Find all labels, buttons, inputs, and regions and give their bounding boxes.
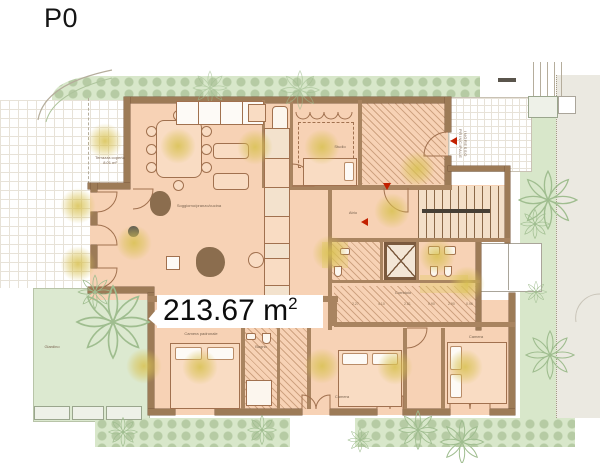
label-main-entrance: INGRESSO PRINCIPALE xyxy=(460,120,468,168)
wall-south xyxy=(403,409,450,415)
dimension: 2.90 xyxy=(448,302,455,306)
wall-bed3-west xyxy=(441,328,445,409)
label-master: Camera padronale xyxy=(178,331,224,336)
dining-chair xyxy=(146,162,157,173)
dimension: 2.81 xyxy=(404,302,411,306)
planter-box xyxy=(106,406,142,420)
garden-bottom-right xyxy=(355,418,575,447)
label-studio: Studio xyxy=(328,144,352,149)
planter-box xyxy=(34,406,70,420)
label-bath: Bagno xyxy=(252,344,270,349)
coffee-table xyxy=(166,256,180,270)
kitchen-appliance xyxy=(248,104,266,122)
shaft xyxy=(264,258,290,286)
wall-west xyxy=(91,183,97,192)
dining-chair xyxy=(201,162,212,173)
wall-terrace-east xyxy=(124,97,130,185)
shaft xyxy=(264,216,290,244)
light-glow xyxy=(399,151,435,187)
label-terrace: Terrazza coperta 8.01 m² xyxy=(84,155,136,165)
entrance-arrow-icon xyxy=(383,183,391,190)
wall-south xyxy=(490,409,515,415)
pergola-bar xyxy=(498,78,516,82)
light-glow xyxy=(374,193,410,229)
label-bedroom2: Camera xyxy=(330,394,354,399)
wall-south xyxy=(215,409,302,415)
light-glow xyxy=(449,266,485,302)
planter-box xyxy=(72,406,104,420)
neighbor-area xyxy=(556,75,600,418)
wall-elev-w xyxy=(380,240,383,282)
entry-planter xyxy=(528,96,558,118)
label-bedroom3: Camera xyxy=(464,334,488,339)
label-corridor: Corridoio xyxy=(390,290,416,295)
sink xyxy=(246,333,256,340)
light-glow xyxy=(87,123,123,159)
light-glow xyxy=(182,349,218,385)
wall-east-upper xyxy=(445,97,451,132)
pillow xyxy=(344,162,354,181)
lightwell-line xyxy=(508,243,509,290)
wall-bottom-east xyxy=(509,293,515,415)
wall-stairwing-east xyxy=(505,166,510,243)
entry-box xyxy=(558,96,576,114)
lightwell xyxy=(478,243,542,292)
toilet xyxy=(262,333,271,344)
dining-chair xyxy=(201,144,212,155)
wall-studio-east xyxy=(358,100,362,188)
label-atrio: Atrio xyxy=(342,210,364,215)
pergola-lines xyxy=(533,62,563,100)
light-glow xyxy=(116,225,152,261)
dining-chair xyxy=(146,144,157,155)
sofa xyxy=(213,173,249,190)
wall-south xyxy=(148,409,175,415)
wall-stairwing-north xyxy=(448,166,510,171)
light-glow xyxy=(126,348,162,384)
light-glow xyxy=(304,348,340,384)
light-glow xyxy=(237,129,273,165)
light-glow xyxy=(419,238,455,274)
light-glow xyxy=(60,188,96,224)
pillow xyxy=(342,353,368,365)
wall-elev-e xyxy=(416,240,419,282)
shaft xyxy=(264,158,290,188)
dimension: 2.27 xyxy=(352,302,359,306)
wall-band-north xyxy=(330,238,510,242)
dining-chair xyxy=(146,126,157,137)
dimension: 0.90 xyxy=(428,302,435,306)
wall-south xyxy=(330,409,377,415)
light-glow xyxy=(447,349,483,385)
elevator xyxy=(384,242,418,280)
entrance-arrow-icon xyxy=(450,137,457,145)
floorplan-page: P0 xyxy=(0,0,600,463)
wall-bottom-north xyxy=(334,322,515,327)
dining-chair xyxy=(173,180,184,191)
light-glow xyxy=(312,235,348,271)
wall-east-upper xyxy=(445,156,451,188)
dimension: 0.96 xyxy=(466,302,473,306)
stair-rail xyxy=(422,209,490,213)
label-garden: Giardino xyxy=(38,344,66,349)
garden-bottom-left xyxy=(95,418,290,447)
label-living: Soggiorno/pranzo/cucina xyxy=(160,203,238,208)
plant-pot xyxy=(196,247,225,277)
wall-bath-east xyxy=(277,328,280,409)
area-label: 213.67 m2 xyxy=(163,294,298,328)
hatch-hall-bottom xyxy=(277,328,307,409)
wall-north xyxy=(124,97,451,103)
light-glow xyxy=(60,246,96,282)
dimension: 4.10 xyxy=(378,302,385,306)
garden-right-strip xyxy=(520,170,556,418)
shower xyxy=(246,380,272,406)
page-title: P0 xyxy=(44,3,78,34)
wall-services xyxy=(290,100,293,188)
light-glow xyxy=(160,128,196,164)
light-glow xyxy=(377,349,413,385)
dining-chair xyxy=(201,126,212,137)
wall-living-south xyxy=(88,287,154,293)
armchair xyxy=(248,252,264,268)
entrance-arrow-icon xyxy=(361,218,368,226)
